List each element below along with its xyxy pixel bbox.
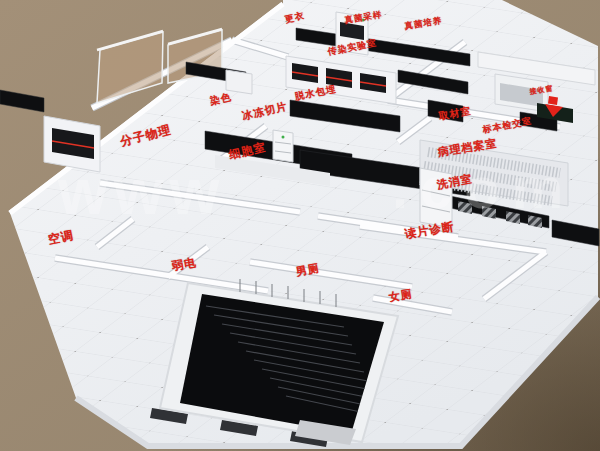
watermark-left: www bbox=[57, 156, 225, 228]
watermark-right: .com bbox=[392, 155, 575, 220]
lab-fridge bbox=[273, 130, 293, 162]
lab-floorplan-render: www .com 更衣 真菌采样 真菌培养 传染实验室 染色 脱水包埋 冰冻切片… bbox=[0, 0, 600, 451]
floorplan-canvas: www .com bbox=[0, 0, 600, 451]
